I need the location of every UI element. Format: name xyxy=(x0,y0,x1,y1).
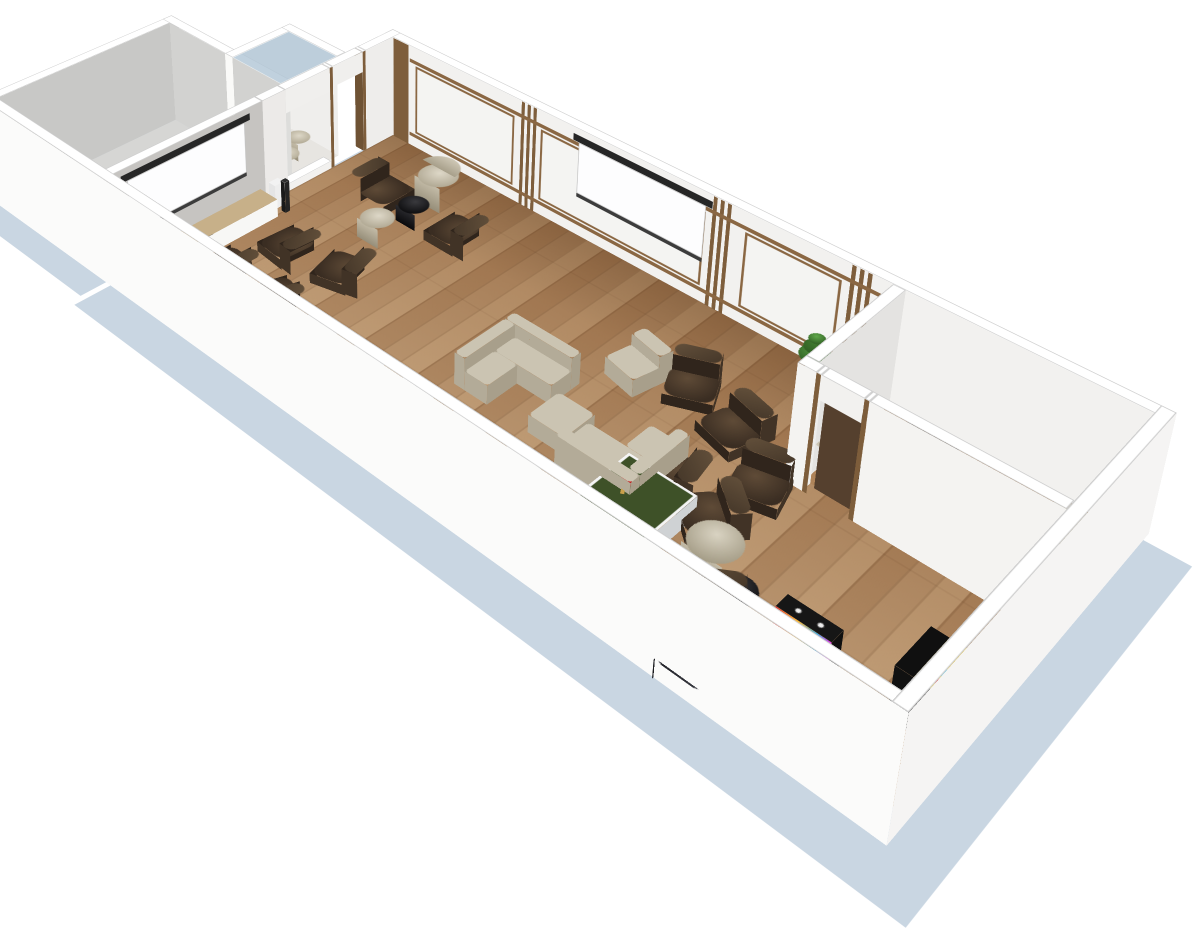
floorplan-3d-render xyxy=(0,0,1200,942)
sofa-L-west-part-front xyxy=(454,352,465,390)
floorplan xyxy=(122,135,1127,822)
panel-corner-wood-band xyxy=(394,38,409,144)
scene-perspective xyxy=(0,0,1200,942)
